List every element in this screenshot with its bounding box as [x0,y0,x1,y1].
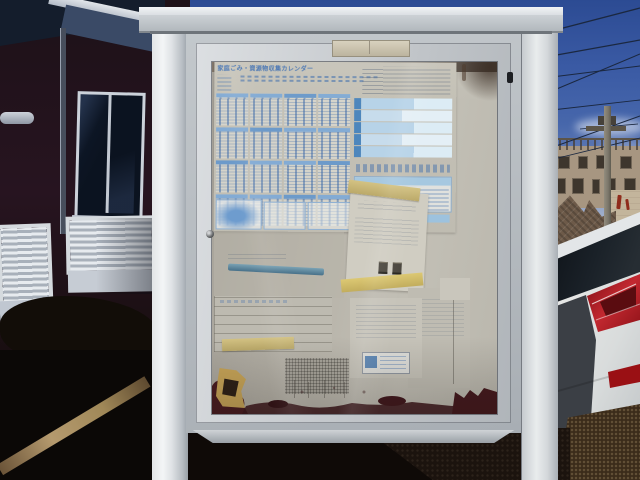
month-dates [318,98,350,126]
sticker-dark-core [220,376,242,402]
calendar-logo-box [216,199,262,229]
month-cell [250,94,282,126]
stain-drip [462,64,466,81]
corner-stain [450,62,497,106]
board-glass-interior: 家庭ごみ・資源物収集カレンダー [212,62,497,414]
month-dates [284,131,316,159]
tape-strip [222,337,294,352]
calendar-subtitle-line [240,80,366,83]
board-cap-shadow [150,31,552,34]
month-dates [216,97,248,125]
info-row-tab [354,110,361,121]
window-pane [109,95,137,214]
info-row-tab [354,98,361,109]
latch-split-line [369,41,370,54]
info-text-block [362,66,450,94]
info-icon-row [356,164,450,172]
calendar-contact-box [308,202,352,230]
month-dates [250,165,282,193]
big-window [74,91,145,223]
calendar-note-block [217,74,231,90]
month-dates [284,98,316,126]
louver-window-left [1,227,50,303]
month-cell [284,127,316,159]
info-row-body [361,98,452,109]
form-text-rows [356,304,416,338]
info-row-body [361,146,452,157]
month-dates [318,131,350,159]
info-row-tab [354,134,361,145]
cabinet-underside [186,430,521,443]
calendar-legend-box [264,202,306,230]
info-table-row [354,98,452,110]
board-left-post [152,26,188,480]
month-dates [318,165,350,193]
month-cell [216,160,248,192]
downpipe [60,28,66,234]
rust-stain-band [212,362,497,414]
month-cell [250,127,282,159]
info-row-body [361,110,452,121]
month-cell [250,161,282,193]
month-cell [284,161,316,193]
faded-text-row [228,254,286,259]
month-dates [284,165,316,193]
month-dates [216,164,248,192]
month-cell [216,93,248,125]
info-row-tab [354,122,361,133]
month-dates [250,131,282,159]
table-header-row [220,300,290,303]
info-row-body [361,134,452,145]
month-cell [318,161,350,193]
photo-scene: 家庭ごみ・資源物収集カレンダー [0,0,640,480]
board-right-post [521,26,558,480]
month-cell [318,127,350,159]
hinge-nub [507,72,513,83]
louver-shadow [96,218,154,294]
info-table-row [354,122,452,134]
door-lock [206,230,214,238]
wall-vent [0,112,34,124]
small-note [440,278,470,300]
info-table [354,98,452,161]
info-row-body [361,122,452,133]
window-pane [78,94,109,213]
latch-plate [332,40,410,57]
notice-text-block [358,200,416,211]
month-dates [216,131,248,159]
info-table-row [354,110,452,122]
info-table-row [354,134,452,146]
stamp-mark [392,262,402,274]
month-cell [318,94,350,126]
info-row-tab [354,146,361,157]
notice-text-block [354,216,419,245]
info-table-row [354,146,452,158]
month-dates [250,98,282,126]
stamp-mark [378,262,388,274]
month-cell [216,127,248,159]
month-cell [284,94,316,126]
